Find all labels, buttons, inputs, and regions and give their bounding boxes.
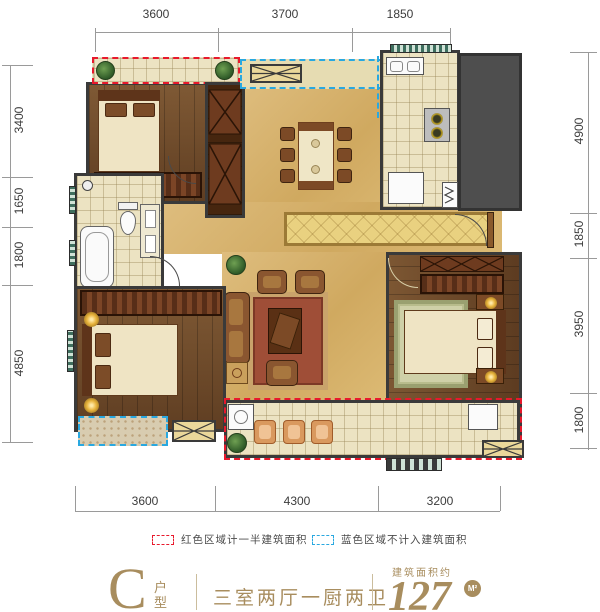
dim-top-2: 3700 [255,7,315,21]
ac-unit-balcony [482,440,524,458]
dining-chair [280,148,295,162]
window-left-1 [69,186,76,214]
kitchen-sink [386,57,424,75]
wardrobe-master [80,290,222,316]
nightstand [476,294,504,310]
dim-right-2: 1850 [572,204,586,264]
bed-2 [98,90,160,172]
balcony-appliance [468,404,498,430]
door-arc-master [150,256,180,286]
cabinet-x-strip [420,256,504,272]
legend-red-label: 红色区域计一半建筑面积 [181,534,308,546]
dim-tick [352,28,353,52]
dim-left-3: 1800 [12,225,26,285]
area-unit-badge: M² [464,580,481,597]
nightstand [476,368,504,384]
coffee-table [268,308,302,354]
dim-tick [378,486,379,511]
dim-tick [500,486,501,511]
armchair [266,360,298,386]
balcony-railing [386,458,442,471]
floorplan-page: 3600 3700 1850 3600 4300 3200 3400 1650 … [0,0,600,612]
plant-balcony [227,433,247,453]
dim-line-bottom [75,511,500,512]
dim-bottom-3: 3200 [410,494,470,508]
dining-chair [280,169,295,183]
balcony-stool [283,420,305,444]
stairwell-block [458,53,522,211]
wardrobe-bedroom-3 [420,274,504,294]
dining-chair [337,127,352,141]
plant-bay-left [96,61,115,80]
title-divider [372,574,373,610]
unit-letter: C [108,564,147,612]
plant-living [226,255,246,275]
ac-unit-top [250,64,302,83]
dim-line-right [588,52,589,450]
dim-tick [95,28,96,52]
legend-blue-swatch [312,535,334,545]
bed-master [82,324,178,396]
dim-tick [218,28,219,52]
plant-bay-right [215,61,234,80]
dim-bottom-2: 4300 [267,494,327,508]
armchair [295,270,325,294]
dining-chair [280,127,295,141]
dim-right-3: 3950 [572,294,586,354]
area-value: 127 [388,578,451,612]
dim-right-4: 1800 [572,390,586,450]
hall-cabinet [205,82,245,218]
title-divider [196,574,197,610]
dim-left-2: 1650 [12,171,26,231]
legend-blue-label: 蓝色区域不计入建筑面积 [341,534,468,546]
dim-bottom-1: 3600 [115,494,175,508]
dim-line-left [10,65,11,443]
balcony-stool [311,420,333,444]
dining-chair [337,148,352,162]
dim-top-3: 1850 [370,7,430,21]
unit-rooms-text: 三室两厅一厨两卫 [213,583,389,610]
bathtub [80,226,114,288]
nightstand-lamp [84,398,99,413]
window-left-2 [69,240,76,266]
cabinet-x-panel [208,86,242,214]
armchair [257,270,287,294]
dim-tick [2,285,33,286]
bay-window-blue-zone [78,416,168,446]
dim-tick [215,486,216,511]
kitchen-sliding-door [442,182,458,208]
dining-table [298,122,334,190]
dim-tick [570,52,597,53]
dim-left-4: 4850 [12,333,26,393]
dim-top-1: 3600 [126,7,186,21]
dining-chair [337,169,352,183]
side-table [226,362,248,384]
window-left-3 [67,330,74,372]
kitchen-stove [424,108,450,142]
dim-right-1: 4900 [572,101,586,161]
dim-tick [2,65,33,66]
vanity-sink [140,204,160,258]
ac-unit-master [172,420,216,442]
nightstand-lamp [84,312,99,327]
refrigerator [388,172,424,204]
toilet [116,202,140,238]
legend-red-swatch [152,535,174,545]
balcony-stool [254,420,276,444]
dim-left-1: 3400 [12,90,26,150]
dim-line-top [95,32,450,33]
sofa [224,292,250,364]
kitchen-window [390,44,452,53]
washing-machine [228,404,254,430]
dim-tick [2,442,33,443]
bed-3 [404,310,506,374]
blue-dash-kitchen-wall [377,56,379,118]
dim-tick [75,486,76,511]
unit-letter-suffix: 户型 [154,580,170,610]
shower-head-icon [82,180,93,191]
entry-door-leaf [487,212,494,248]
